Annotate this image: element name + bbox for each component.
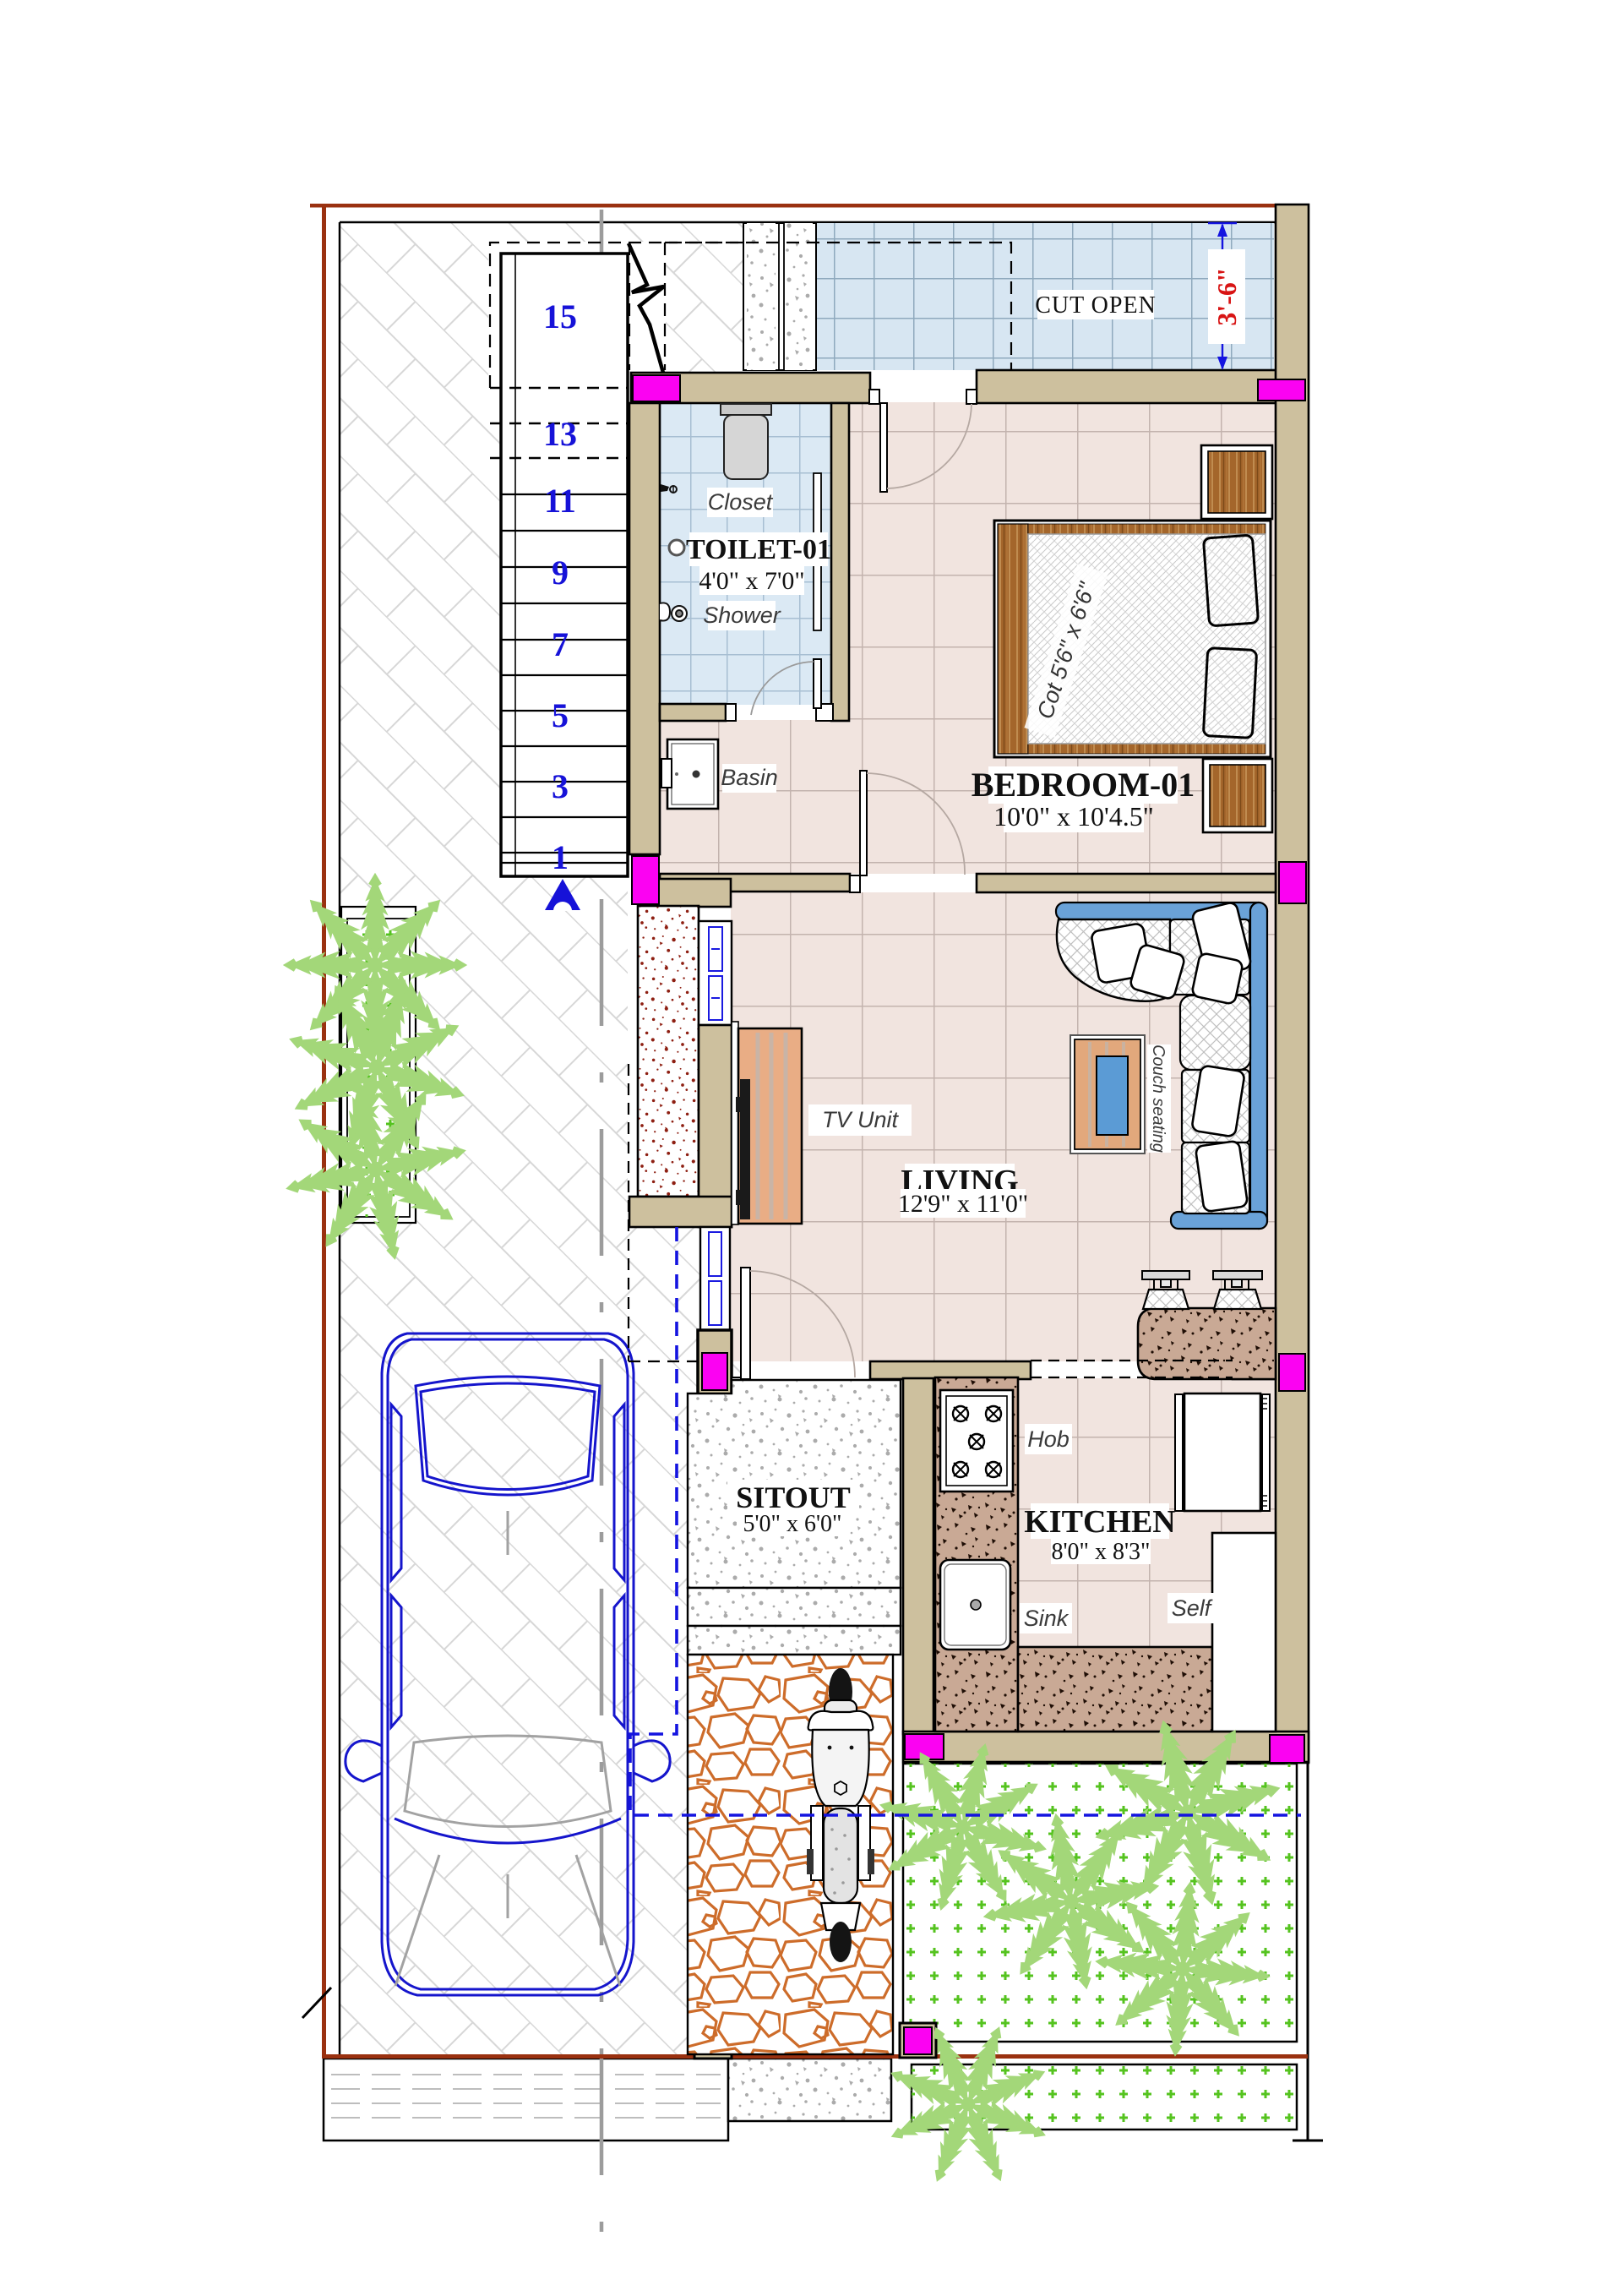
svg-text:3: 3	[552, 767, 569, 805]
svg-text:13: 13	[543, 415, 577, 453]
svg-text:15: 15	[543, 297, 577, 335]
svg-text:Sink: Sink	[1024, 1606, 1070, 1631]
svg-text:Closet: Closet	[708, 489, 774, 515]
svg-text:Self: Self	[1172, 1595, 1213, 1621]
svg-text:Shower: Shower	[703, 603, 781, 628]
svg-text:10'0" x 10'4.5": 10'0" x 10'4.5"	[993, 801, 1154, 832]
svg-text:1: 1	[552, 838, 569, 876]
svg-text:TOILET-01: TOILET-01	[686, 534, 831, 565]
svg-text:BEDROOM-01: BEDROOM-01	[972, 766, 1195, 804]
svg-text:3'-6": 3'-6"	[1211, 267, 1242, 325]
svg-text:4'0" x 7'0": 4'0" x 7'0"	[699, 567, 804, 595]
svg-text:7: 7	[552, 625, 569, 663]
svg-text:5'0" x 6'0": 5'0" x 6'0"	[743, 1511, 842, 1537]
svg-text:9: 9	[552, 554, 569, 592]
svg-text:11: 11	[544, 482, 576, 520]
svg-text:KITCHEN: KITCHEN	[1024, 1504, 1175, 1540]
svg-text:Hob: Hob	[1027, 1426, 1070, 1452]
svg-text:CUT OPEN: CUT OPEN	[1035, 292, 1157, 319]
svg-text:Couch seating: Couch seating	[1149, 1044, 1168, 1153]
svg-text:TV Unit: TV Unit	[822, 1107, 900, 1132]
svg-text:5: 5	[552, 696, 569, 734]
svg-text:12'9" x 11'0": 12'9" x 11'0"	[898, 1190, 1028, 1218]
svg-text:8'0" x 8'3": 8'0" x 8'3"	[1052, 1539, 1151, 1565]
svg-text:Basin: Basin	[721, 765, 778, 790]
